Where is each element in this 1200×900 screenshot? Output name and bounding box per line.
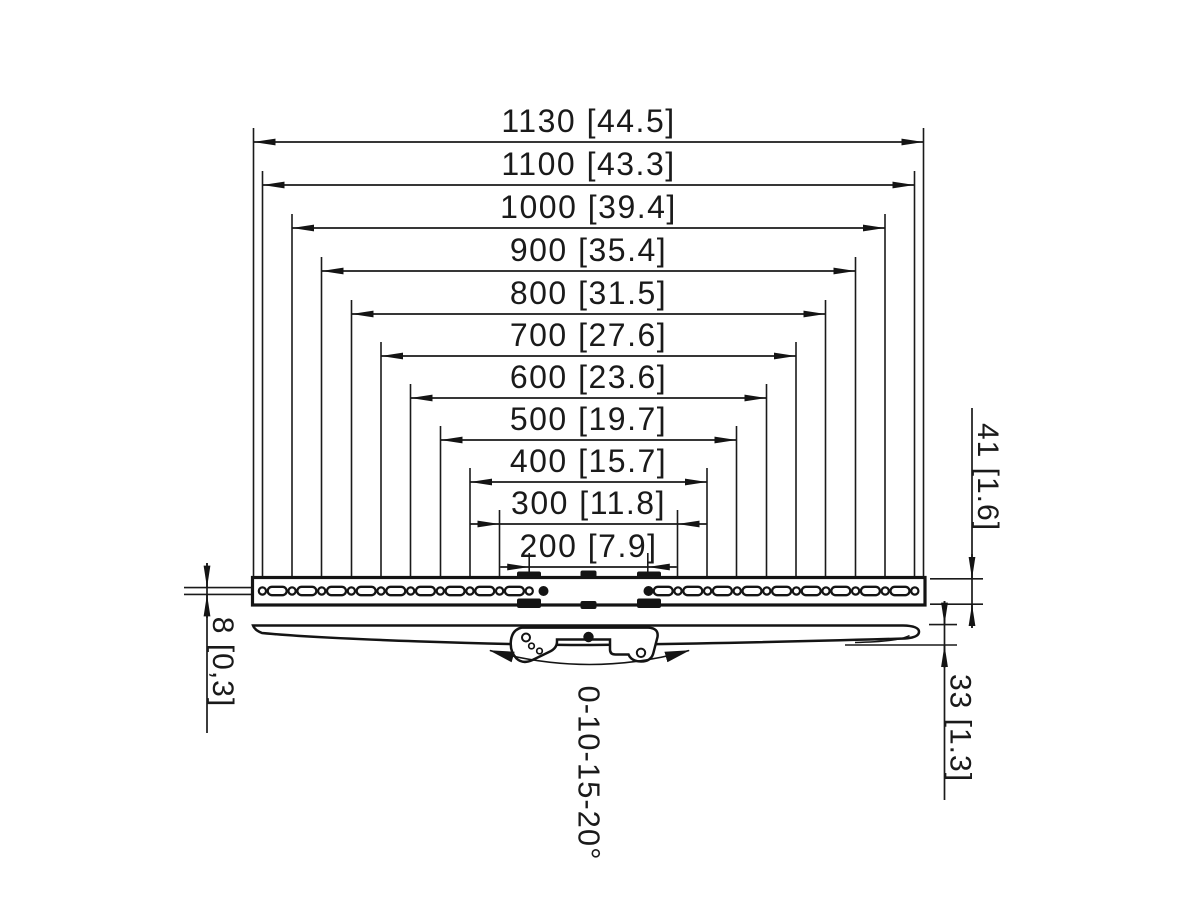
round-hole — [377, 587, 384, 594]
round-hole — [288, 587, 295, 594]
slot-hole — [654, 587, 673, 595]
dim-label-800: 800 [31.5] — [510, 275, 667, 311]
round-hole — [793, 587, 800, 594]
dim-label-8: 8 [0,3] — [206, 617, 239, 707]
dim-label-1000: 1000 [39.4] — [500, 189, 677, 225]
slot-hole — [683, 587, 702, 595]
tilt-range-text: 0-10-15-20° — [572, 685, 607, 860]
slot-hole — [416, 587, 435, 595]
rail-profile-view — [253, 626, 919, 665]
technical-drawing-page: 1130 [44.5] 1100 [43.3] 1000 [39.4] 900 … — [0, 0, 1200, 900]
round-hole — [348, 587, 355, 594]
round-hole — [466, 587, 473, 594]
dim-label-200: 200 [7.9] — [519, 528, 657, 564]
slot-hole — [327, 587, 346, 595]
slot-hole — [891, 587, 910, 595]
fixed-hole-right — [644, 586, 654, 596]
dim-label-300: 300 [11.8] — [511, 485, 666, 521]
dim-label-400: 400 [15.7] — [510, 443, 667, 479]
round-hole — [734, 587, 741, 594]
dim-label-600: 600 [23.6] — [510, 359, 667, 395]
rail-front-view — [253, 571, 926, 610]
slot-hole — [861, 587, 880, 595]
round-hole — [882, 587, 889, 594]
fixed-hole-left — [539, 586, 549, 596]
dim-label-33: 33 [1.3] — [944, 674, 977, 782]
slot-hole — [802, 587, 821, 595]
dim-label-41: 41 [1.6] — [971, 423, 1004, 531]
round-hole — [674, 587, 681, 594]
round-hole — [526, 587, 533, 594]
slot-hole — [475, 587, 494, 595]
round-hole — [911, 587, 918, 594]
dimension-drawing-canvas: 1130 [44.5] 1100 [43.3] 1000 [39.4] 900 … — [0, 0, 1200, 900]
slot-hole — [713, 587, 732, 595]
round-hole — [496, 587, 503, 594]
slot-hole — [743, 587, 762, 595]
round-hole — [259, 587, 266, 594]
round-hole — [407, 587, 414, 594]
round-hole — [318, 587, 325, 594]
round-hole — [852, 587, 859, 594]
center-pivot — [583, 632, 593, 642]
slot-hole — [831, 587, 850, 595]
slot-hole — [505, 587, 524, 595]
slot-hole — [297, 587, 316, 595]
slot-hole — [446, 587, 465, 595]
slot-hole — [386, 587, 405, 595]
dimension-v-41: 41 [1.6] — [930, 408, 1004, 628]
round-hole — [704, 587, 711, 594]
dim-label-1100: 1100 [43.3] — [501, 146, 675, 182]
horizontal-dimensions: 1130 [44.5] 1100 [43.3] 1000 [39.4] 900 … — [254, 103, 924, 578]
round-hole — [822, 587, 829, 594]
dim-label-700: 700 [27.6] — [510, 317, 667, 353]
round-hole — [763, 587, 770, 594]
dim-label-900: 900 [35.4] — [510, 232, 667, 268]
dim-label-500: 500 [19.7] — [510, 401, 667, 437]
slot-hole — [357, 587, 376, 595]
dimension-v-8: 8 [0,3] — [184, 563, 251, 733]
dim-label-1130: 1130 [44.5] — [501, 103, 675, 139]
round-hole — [437, 587, 444, 594]
slot-hole — [268, 587, 287, 595]
slot-hole — [772, 587, 791, 595]
tilt-range-label: 0-10-15-20° — [572, 685, 607, 860]
